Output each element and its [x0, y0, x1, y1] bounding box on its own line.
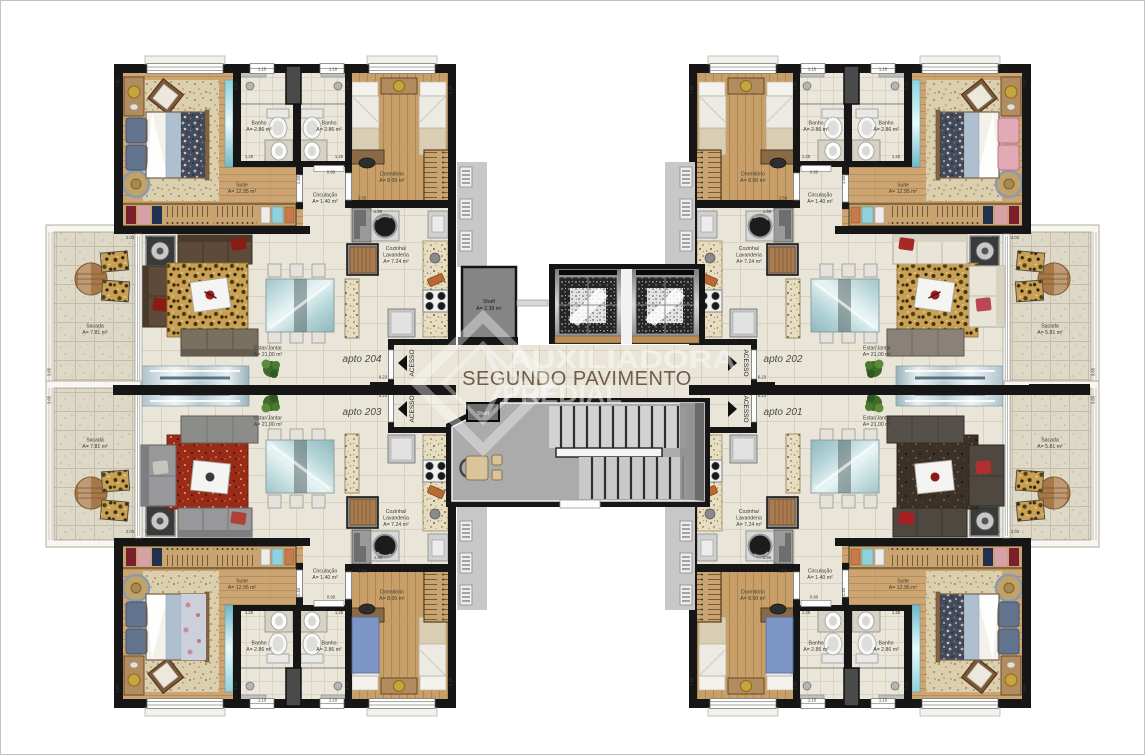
svg-text:ACESSO: ACESSO [409, 395, 416, 422]
svg-text:Cozinha/: Cozinha/ [386, 246, 407, 252]
svg-text:Lavanderia: Lavanderia [736, 252, 762, 258]
svg-text:Dormitório: Dormitório [380, 172, 404, 178]
svg-text:1.95: 1.95 [763, 209, 772, 214]
svg-text:2.58: 2.58 [358, 196, 367, 201]
svg-text:Suite: Suite [897, 579, 909, 585]
svg-text:1.40: 1.40 [841, 175, 846, 184]
svg-text:2.40: 2.40 [233, 681, 238, 690]
svg-text:Dormitório: Dormitório [380, 590, 404, 596]
svg-text:1.10: 1.10 [329, 698, 338, 703]
svg-text:1.25: 1.25 [802, 154, 811, 159]
svg-text:A= 2.86 m²: A= 2.86 m² [246, 127, 272, 133]
svg-text:1.95: 1.95 [374, 555, 383, 560]
svg-text:A= 2.86 m²: A= 2.86 m² [873, 127, 899, 133]
svg-text:2.03: 2.03 [126, 529, 135, 534]
svg-text:Banho: Banho [808, 121, 823, 127]
svg-text:1.40: 1.40 [296, 175, 301, 184]
svg-text:A= 7.24 m²: A= 7.24 m² [736, 259, 762, 265]
svg-text:2.40: 2.40 [904, 81, 909, 90]
svg-text:1.40: 1.40 [841, 587, 846, 596]
svg-text:A= 7.81 m²: A= 7.81 m² [82, 330, 108, 336]
svg-text:Suite: Suite [236, 183, 248, 189]
svg-text:Estar/Jantar: Estar/Jantar [863, 346, 891, 352]
svg-text:Banho: Banho [878, 641, 893, 647]
svg-text:5.11: 5.11 [145, 235, 154, 240]
svg-text:A= 8.00 m²: A= 8.00 m² [740, 596, 766, 602]
svg-text:Estar/Jantar: Estar/Jantar [254, 346, 282, 352]
svg-text:1.10: 1.10 [258, 698, 267, 703]
svg-text:A= 8.00 m²: A= 8.00 m² [379, 596, 405, 602]
svg-text:3.20: 3.20 [448, 85, 453, 94]
svg-text:Banho: Banho [321, 641, 336, 647]
svg-text:1.10: 1.10 [808, 67, 817, 72]
svg-text:6.23: 6.23 [379, 375, 388, 380]
svg-text:6.23: 6.23 [758, 375, 767, 380]
svg-text:2.80: 2.80 [115, 78, 120, 87]
svg-text:A= 1.40 m²: A= 1.40 m² [807, 199, 833, 205]
svg-text:A= 1.40 m²: A= 1.40 m² [312, 199, 338, 205]
svg-text:Circulação: Circulação [313, 569, 338, 575]
svg-text:1.10: 1.10 [258, 67, 267, 72]
svg-text:Lavanderia: Lavanderia [736, 515, 762, 521]
svg-text:3.85: 3.85 [47, 395, 52, 404]
svg-text:5.11: 5.11 [992, 529, 1001, 534]
svg-text:Dormitório: Dormitório [741, 172, 765, 178]
svg-text:A= 2.86 m²: A= 2.86 m² [873, 647, 899, 653]
svg-text:Banho: Banho [878, 121, 893, 127]
svg-text:A= 21,00 m²: A= 21,00 m² [863, 352, 892, 358]
svg-text:A= 2.86 m²: A= 2.86 m² [316, 127, 342, 133]
svg-text:apto 202: apto 202 [764, 354, 803, 365]
svg-text:apto 201: apto 201 [764, 407, 803, 418]
svg-text:A= 1.40 m²: A= 1.40 m² [807, 575, 833, 581]
svg-text:A= 1.40 m²: A= 1.40 m² [312, 575, 338, 581]
svg-text:Circulação: Circulação [808, 569, 833, 575]
svg-text:1.95: 1.95 [763, 555, 772, 560]
svg-text:2.80: 2.80 [1022, 78, 1027, 87]
svg-text:A= 2.38 m²: A= 2.38 m² [476, 306, 502, 312]
svg-text:1.25: 1.25 [802, 610, 811, 615]
svg-text:Estar/Jantar: Estar/Jantar [254, 416, 282, 422]
svg-text:1.25: 1.25 [245, 154, 254, 159]
svg-text:1.10: 1.10 [879, 698, 888, 703]
svg-text:2.80: 2.80 [115, 684, 120, 693]
svg-text:3.20: 3.20 [689, 677, 694, 686]
svg-text:5.11: 5.11 [145, 529, 154, 534]
svg-text:A= 21,00 m²: A= 21,00 m² [254, 352, 283, 358]
svg-text:Sacada: Sacada [1041, 438, 1059, 444]
svg-text:3.20: 3.20 [448, 677, 453, 686]
svg-text:apto 204: apto 204 [343, 354, 382, 365]
svg-text:2.58: 2.58 [779, 196, 788, 201]
svg-text:A= 8.00 m²: A= 8.00 m² [740, 178, 766, 184]
svg-text:6.23: 6.23 [758, 393, 767, 398]
svg-text:2.40: 2.40 [904, 681, 909, 690]
svg-text:AUXILIADORA: AUXILIADORA [508, 344, 736, 374]
svg-text:Lavanderia: Lavanderia [383, 252, 409, 258]
svg-text:2.40: 2.40 [233, 81, 238, 90]
svg-text:Cozinha/: Cozinha/ [386, 509, 407, 515]
svg-text:Banho: Banho [251, 121, 266, 127]
svg-text:A= 8.00 m²: A= 8.00 m² [379, 178, 405, 184]
svg-text:2.58: 2.58 [779, 569, 788, 574]
svg-text:2.03: 2.03 [126, 235, 135, 240]
svg-text:3.85: 3.85 [1091, 367, 1096, 376]
svg-text:A= 12.95 m²: A= 12.95 m² [228, 189, 257, 195]
svg-text:1.10: 1.10 [879, 67, 888, 72]
svg-text:Shaft: Shaft [483, 299, 496, 305]
svg-text:A= 7.24 m²: A= 7.24 m² [383, 259, 409, 265]
svg-text:2.03: 2.03 [1011, 529, 1020, 534]
svg-text:apto 203: apto 203 [343, 407, 382, 418]
svg-text:1.25: 1.25 [335, 610, 344, 615]
svg-text:1.10: 1.10 [808, 698, 817, 703]
svg-text:Banho: Banho [808, 641, 823, 647]
svg-text:Suite: Suite [236, 579, 248, 585]
svg-text:Sacada: Sacada [1041, 324, 1059, 330]
svg-text:A= 5.81 m²: A= 5.81 m² [1037, 330, 1063, 336]
svg-text:Circulação: Circulação [313, 193, 338, 199]
svg-text:A= 12.95 m²: A= 12.95 m² [889, 189, 918, 195]
svg-text:A= 2.86 m²: A= 2.86 m² [803, 647, 829, 653]
svg-text:A= 7.24 m²: A= 7.24 m² [736, 522, 762, 528]
svg-text:A= 2.86 m²: A= 2.86 m² [246, 647, 272, 653]
svg-text:3.20: 3.20 [689, 85, 694, 94]
svg-text:Sacada: Sacada [86, 438, 104, 444]
svg-text:2.40: 2.40 [793, 81, 798, 90]
svg-text:2.80: 2.80 [1022, 684, 1027, 693]
svg-text:A= 12.95 m²: A= 12.95 m² [889, 585, 918, 591]
svg-text:Suite: Suite [897, 183, 909, 189]
svg-text:1.25: 1.25 [335, 154, 344, 159]
svg-text:2.40: 2.40 [345, 681, 350, 690]
svg-text:0.90: 0.90 [327, 595, 336, 600]
svg-text:Dormitório: Dormitório [741, 590, 765, 596]
svg-text:Estar/Jantar: Estar/Jantar [863, 416, 891, 422]
svg-text:A= 2.86 m²: A= 2.86 m² [803, 127, 829, 133]
svg-text:A= 5.81 m²: A= 5.81 m² [1037, 444, 1063, 450]
svg-text:A= 7.24 m²: A= 7.24 m² [383, 522, 409, 528]
svg-text:ACESSO: ACESSO [742, 349, 749, 376]
svg-text:1.25: 1.25 [892, 610, 901, 615]
svg-text:1.40: 1.40 [296, 587, 301, 596]
svg-text:Circulação: Circulação [808, 193, 833, 199]
svg-text:A= 12.95 m²: A= 12.95 m² [228, 585, 257, 591]
svg-text:ACESSO: ACESSO [409, 349, 416, 376]
svg-text:Lavanderia: Lavanderia [383, 515, 409, 521]
svg-text:A= 2.86 m²: A= 2.86 m² [316, 647, 342, 653]
svg-text:ACESSO: ACESSO [742, 395, 749, 422]
svg-text:1.95: 1.95 [374, 209, 383, 214]
svg-text:1.10: 1.10 [329, 67, 338, 72]
svg-text:5.11: 5.11 [992, 235, 1001, 240]
svg-text:PREDIAL: PREDIAL [502, 379, 622, 409]
svg-text:A= 7.81 m²: A= 7.81 m² [82, 444, 108, 450]
svg-text:3.85: 3.85 [1091, 395, 1096, 404]
svg-text:2.03: 2.03 [1011, 235, 1020, 240]
svg-text:0.90: 0.90 [327, 170, 336, 175]
svg-text:Cozinha/: Cozinha/ [739, 246, 760, 252]
svg-text:1.25: 1.25 [892, 154, 901, 159]
svg-text:Sacada: Sacada [86, 324, 104, 330]
svg-text:0.90: 0.90 [810, 595, 819, 600]
svg-text:Banho: Banho [321, 121, 336, 127]
svg-text:A= 21,00 m²: A= 21,00 m² [254, 422, 283, 428]
svg-text:Cozinha/: Cozinha/ [739, 509, 760, 515]
svg-text:A= 21,00 m²: A= 21,00 m² [863, 422, 892, 428]
svg-text:Banho: Banho [251, 641, 266, 647]
svg-text:1.25: 1.25 [245, 610, 254, 615]
svg-text:2.40: 2.40 [345, 81, 350, 90]
svg-text:2.40: 2.40 [793, 681, 798, 690]
svg-text:3.85: 3.85 [47, 367, 52, 376]
svg-text:0.90: 0.90 [810, 170, 819, 175]
svg-text:2.58: 2.58 [358, 569, 367, 574]
svg-text:6.23: 6.23 [379, 393, 388, 398]
